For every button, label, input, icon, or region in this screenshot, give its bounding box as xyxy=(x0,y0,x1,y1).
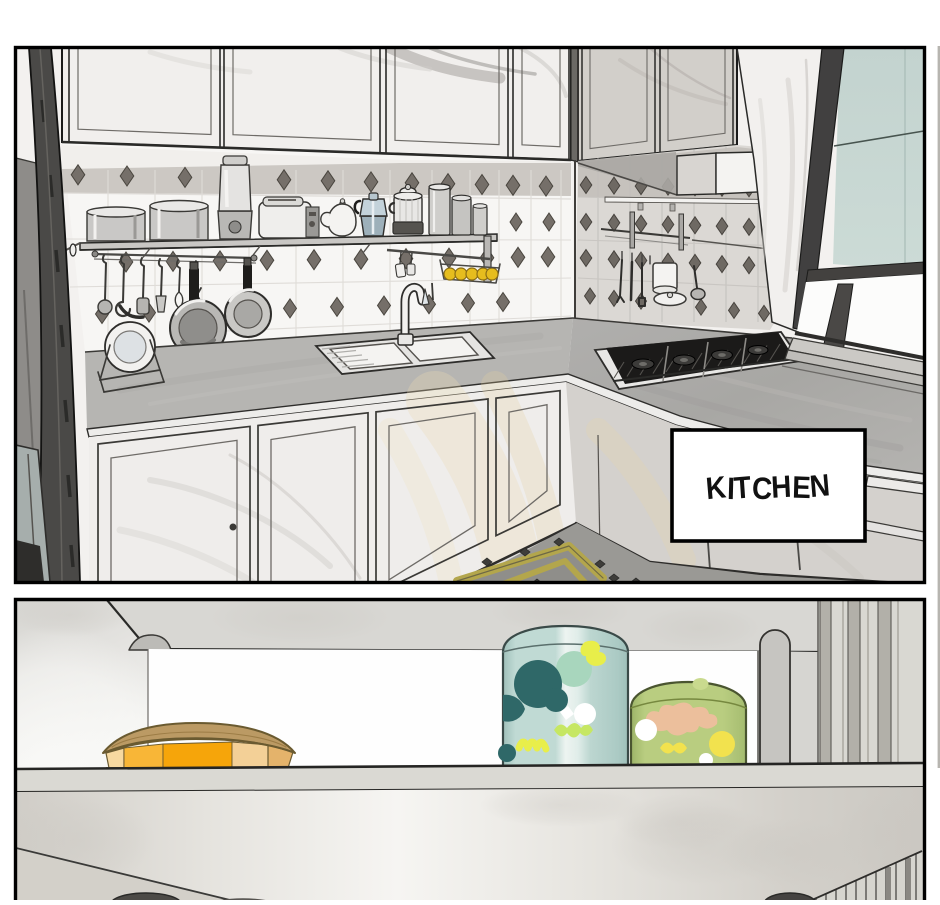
svg-text:KITCHEN: KITCHEN xyxy=(704,467,831,507)
